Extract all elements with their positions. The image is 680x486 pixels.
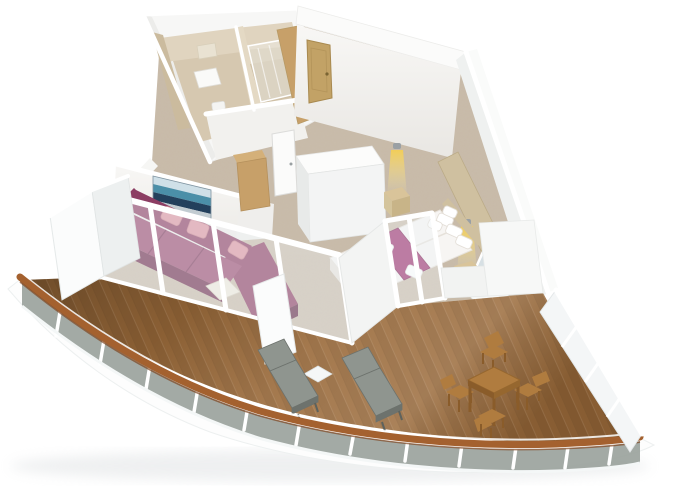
interior-door-handle	[290, 163, 293, 166]
suite-floorplan-render	[0, 0, 680, 486]
white-wardrobe	[296, 146, 386, 242]
entry-door-handle	[325, 72, 328, 75]
bathroom-mirror-cabinet	[197, 43, 217, 59]
interior-door	[272, 130, 297, 196]
suite-floorplan-svg	[0, 0, 680, 486]
bathroom-vanity	[194, 68, 221, 88]
bedroom-sill-wall	[441, 266, 488, 298]
bedroom-front-wall	[479, 220, 543, 296]
sconce-fixture	[393, 143, 401, 149]
bedroom-sliding-doors	[385, 213, 445, 306]
